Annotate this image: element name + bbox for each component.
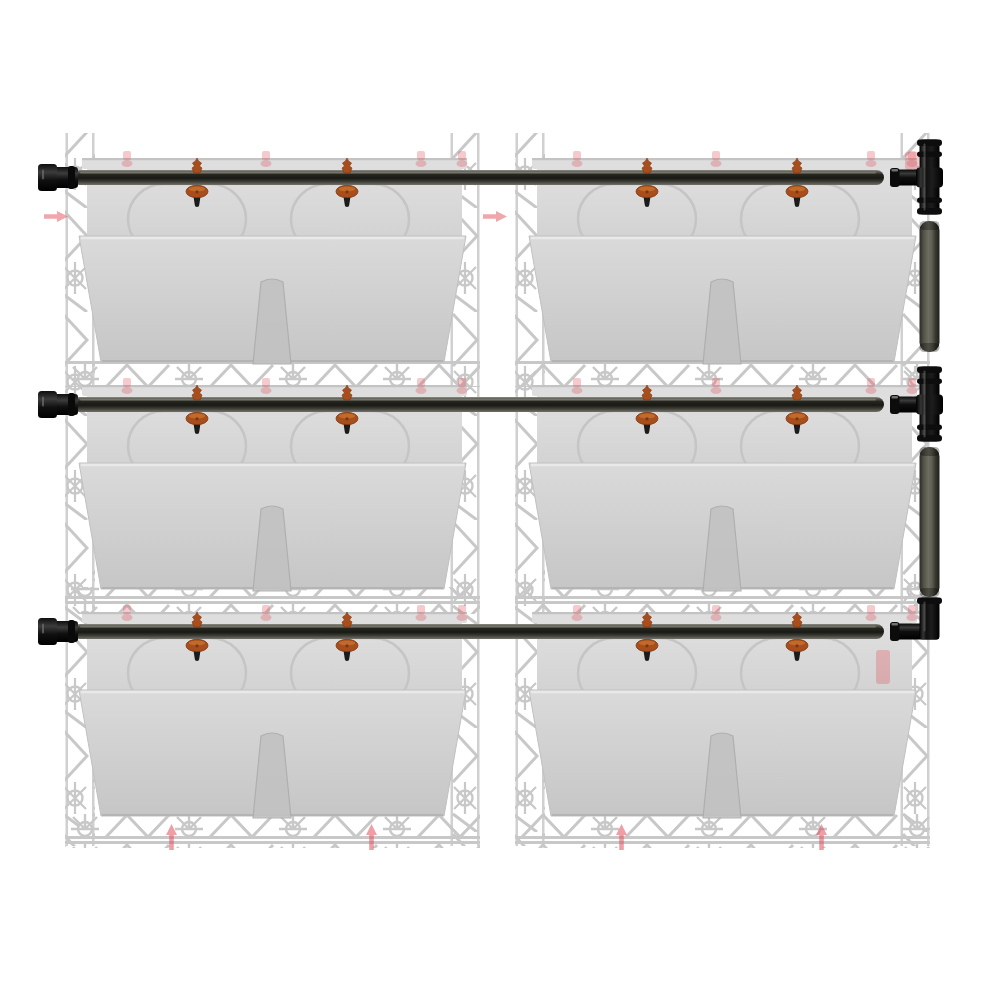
ghost-clip-disc	[572, 160, 583, 167]
emitter-disc-center	[195, 417, 198, 420]
ghost-clip-body	[458, 605, 466, 614]
ghost-clip-body	[262, 605, 270, 614]
ghost-clip-disc	[416, 160, 427, 167]
tube-end-cap	[38, 391, 78, 418]
emitter-disc-center	[345, 417, 348, 420]
riser-end-shade	[920, 343, 940, 352]
emitter-disc-center	[795, 190, 798, 193]
ghost-clip	[876, 650, 890, 684]
emitter-disc-center	[345, 644, 348, 647]
planter-rim-edge	[82, 612, 467, 614]
tube-end-cap	[38, 618, 78, 645]
emitter-disc-center	[195, 644, 198, 647]
end-cap-highlight	[42, 170, 44, 180]
ghost-clip-body	[417, 378, 425, 387]
ghost-clip-body	[262, 151, 270, 160]
riser-body	[920, 447, 940, 597]
ghost-clip-body	[867, 378, 875, 387]
ghost-clip-body	[123, 378, 131, 387]
ghost-clip-disc	[572, 614, 583, 621]
ghost-clip-body	[712, 605, 720, 614]
end-cap-barb-ring	[68, 393, 75, 416]
planter-box	[529, 612, 917, 818]
emitter-disc-center	[345, 190, 348, 193]
ghost-clip-disc	[261, 160, 272, 167]
elbow-highlight	[924, 602, 926, 632]
trellis-cross-band	[65, 814, 480, 848]
tee-barb-ring	[917, 435, 942, 442]
planter-rim-edge	[82, 158, 467, 160]
ghost-clip-disc	[457, 387, 468, 394]
ghost-clip-body	[867, 151, 875, 160]
end-cap-highlight	[42, 624, 44, 634]
trellis-rail	[66, 133, 69, 846]
end-cap-barb-ring	[68, 166, 75, 189]
planter-rim-edge	[532, 385, 917, 387]
planter-rim-edge	[532, 158, 917, 160]
ghost-clip-disc	[122, 614, 133, 621]
riser-end-shade	[920, 447, 940, 456]
emitter-disc-center	[645, 190, 648, 193]
tee-highlight	[924, 144, 926, 211]
ghost-clip-body	[573, 151, 581, 160]
ghost-clip-body	[417, 605, 425, 614]
planter-box	[529, 385, 917, 591]
ghost-clip-body	[123, 605, 131, 614]
ghost-clip-disc	[261, 614, 272, 621]
riser-end-shade	[920, 588, 940, 597]
ghost-clip-disc	[907, 387, 918, 394]
planter-box	[79, 385, 467, 591]
trellis-cross-band	[515, 814, 930, 848]
end-cap-flange	[38, 618, 57, 645]
emitter-disc-center	[645, 644, 648, 647]
ghost-clip-body	[712, 151, 720, 160]
tee-barb-ring	[917, 379, 942, 385]
elbow-barb-ring	[917, 598, 942, 605]
ghost-clip-disc	[416, 387, 427, 394]
ghost-clip-body	[908, 378, 916, 387]
ghost-clip-body	[908, 605, 916, 614]
tee-barb-ring	[917, 140, 942, 147]
riser-end-shade	[920, 221, 940, 230]
ghost-clip-disc	[457, 160, 468, 167]
trellis-rail	[477, 133, 480, 846]
tee-arm-ring-highlight	[892, 169, 899, 172]
ghost-clip-body	[458, 151, 466, 160]
tee-center-collar	[916, 168, 943, 188]
end-cap-flange	[38, 391, 57, 418]
riser-tube	[920, 447, 940, 597]
tee-barb-ring	[917, 425, 942, 431]
ghost-clip-disc	[572, 387, 583, 394]
emitter-disc-center	[195, 190, 198, 193]
planter-rim-edge	[532, 612, 917, 614]
tee-highlight	[924, 371, 926, 438]
emitter-disc-center	[645, 417, 648, 420]
ghost-clip-body	[573, 378, 581, 387]
ghost-clip-body	[123, 151, 131, 160]
planter-box	[79, 158, 467, 364]
ghost-clip-disc	[711, 614, 722, 621]
tube-end-cap	[38, 164, 78, 191]
ghost-clip-disc	[711, 160, 722, 167]
end-cap-highlight	[42, 397, 44, 407]
ghost-clip-disc	[866, 614, 877, 621]
end-cap-barb-ring	[68, 620, 75, 643]
ghost-clip-disc	[866, 387, 877, 394]
ghost-clip-disc	[866, 160, 877, 167]
tee-center-collar	[916, 395, 943, 415]
vertical-garden-irrigation-kit	[0, 0, 1000, 1000]
emitter-disc-center	[795, 644, 798, 647]
ghost-clip	[905, 152, 919, 170]
tee-barb-ring	[917, 367, 942, 374]
ghost-clip-body	[573, 605, 581, 614]
ghost-clip-disc	[457, 614, 468, 621]
ghost-clip-disc	[122, 160, 133, 167]
ghost-clip-disc	[711, 387, 722, 394]
trellis-rail	[516, 133, 519, 846]
ghost-clip-body	[867, 605, 875, 614]
ghost-clip-disc	[122, 387, 133, 394]
product-image	[0, 0, 1000, 1000]
planter-box	[529, 158, 917, 364]
tee-barb-ring	[917, 152, 942, 158]
tee-barb-ring	[917, 198, 942, 204]
emitter-disc-center	[795, 417, 798, 420]
riser-body	[920, 221, 940, 352]
tee-barb-ring	[917, 208, 942, 215]
ghost-clip-disc	[261, 387, 272, 394]
end-cap-flange	[38, 164, 57, 191]
ghost-clip-body	[712, 378, 720, 387]
ghost-clip-body	[458, 378, 466, 387]
ghost-clip-disc	[907, 614, 918, 621]
ghost-clip-body	[262, 378, 270, 387]
ghost-clip-disc	[416, 614, 427, 621]
riser-tube	[920, 221, 940, 352]
tee-arm-ring-highlight	[892, 396, 899, 399]
planter-box	[79, 612, 467, 818]
ghost-clip-body	[417, 151, 425, 160]
elbow-arm-ring-highlight	[892, 623, 899, 626]
planter-rim-edge	[82, 385, 467, 387]
